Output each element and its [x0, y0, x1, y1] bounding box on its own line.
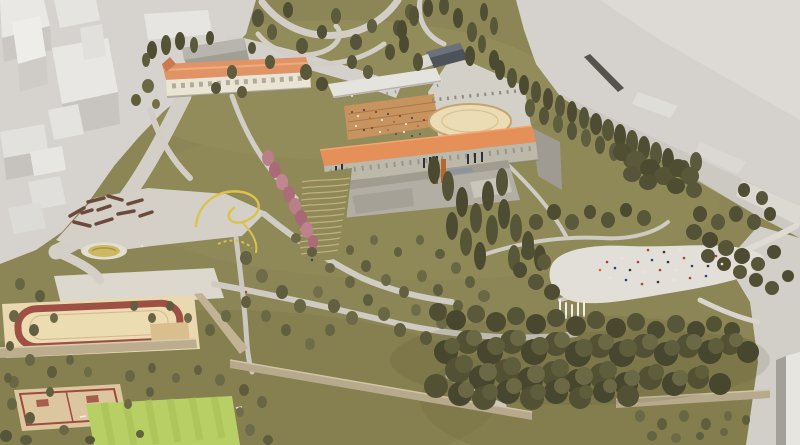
building-block: [12, 16, 46, 64]
park-masterplan-aerial-rendering: [0, 0, 800, 445]
building-block: [48, 104, 84, 140]
basketball-court-key: [36, 399, 49, 407]
corner-building-face: [776, 356, 786, 445]
corner-building-wall: [786, 352, 800, 445]
masterplan-rendering-stage: [0, 0, 800, 445]
basketball-court-key: [86, 395, 99, 403]
building-block: [80, 24, 106, 60]
